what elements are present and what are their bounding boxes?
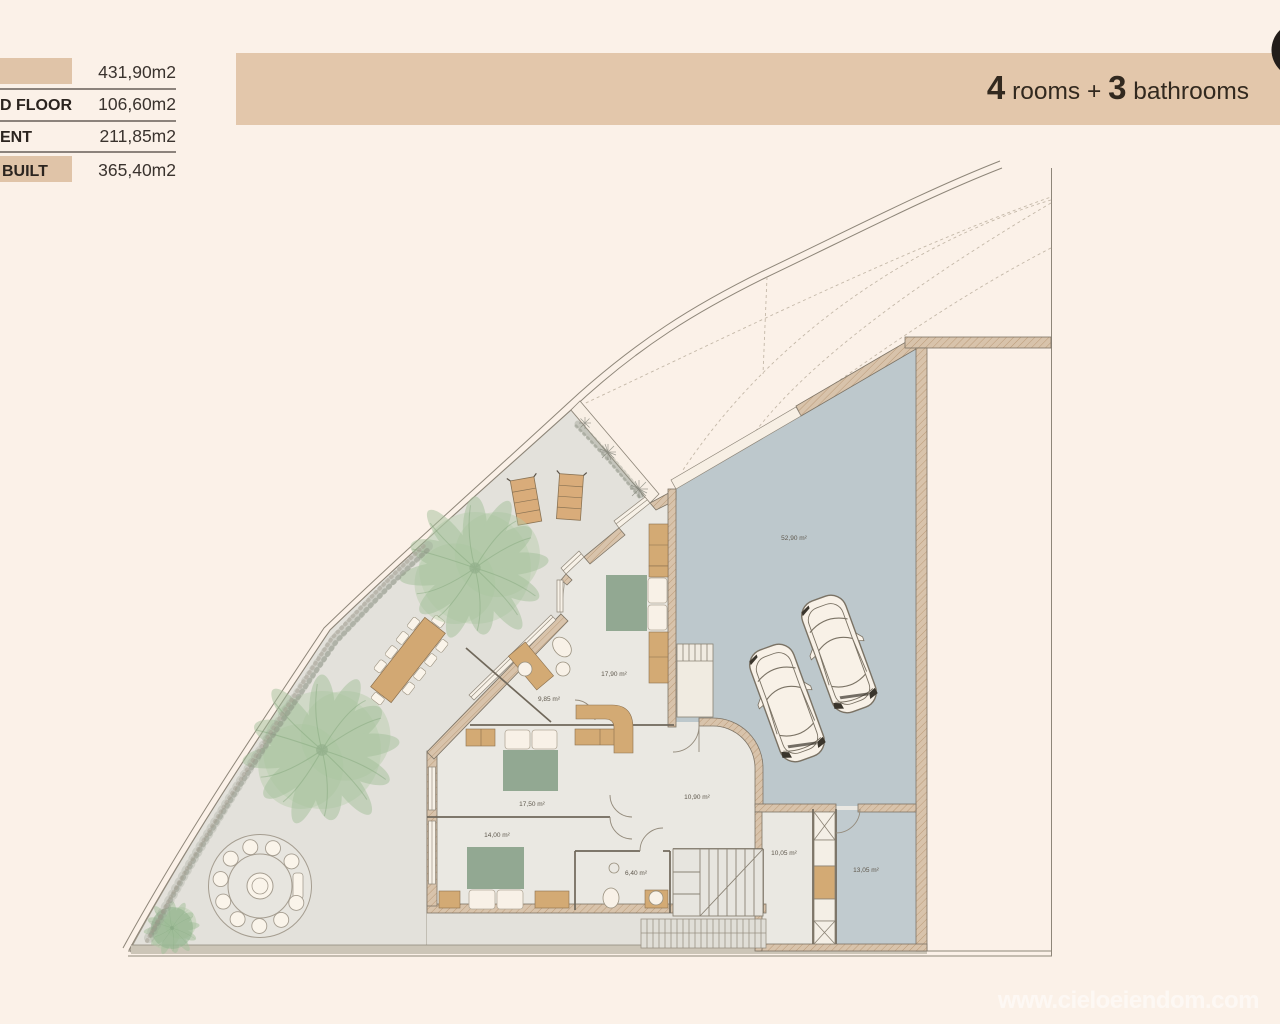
svg-text:13,05 m²: 13,05 m² — [853, 867, 879, 874]
svg-text:106,60m2: 106,60m2 — [98, 94, 176, 114]
svg-text:365,40m2: 365,40m2 — [98, 160, 176, 180]
svg-text:211,85m2: 211,85m2 — [99, 126, 176, 146]
svg-text:431,90m2: 431,90m2 — [98, 62, 176, 82]
svg-text:BUILT: BUILT — [2, 163, 48, 180]
svg-text:6,40 m²: 6,40 m² — [625, 870, 648, 877]
svg-text:52,90 m²: 52,90 m² — [781, 535, 807, 542]
svg-text:17,90 m²: 17,90 m² — [601, 671, 627, 678]
svg-text:9,85 m²: 9,85 m² — [538, 696, 561, 703]
svg-text:ENT: ENT — [0, 129, 32, 146]
svg-text:10,05 m²: 10,05 m² — [771, 850, 797, 857]
svg-text:10,90 m²: 10,90 m² — [684, 794, 710, 801]
svg-text:www.cieloeiendom.com: www.cieloeiendom.com — [997, 987, 1259, 1014]
svg-text:17,50 m²: 17,50 m² — [519, 801, 545, 808]
svg-text:D FLOOR: D FLOOR — [0, 97, 72, 114]
svg-text:14,00 m²: 14,00 m² — [484, 832, 510, 839]
